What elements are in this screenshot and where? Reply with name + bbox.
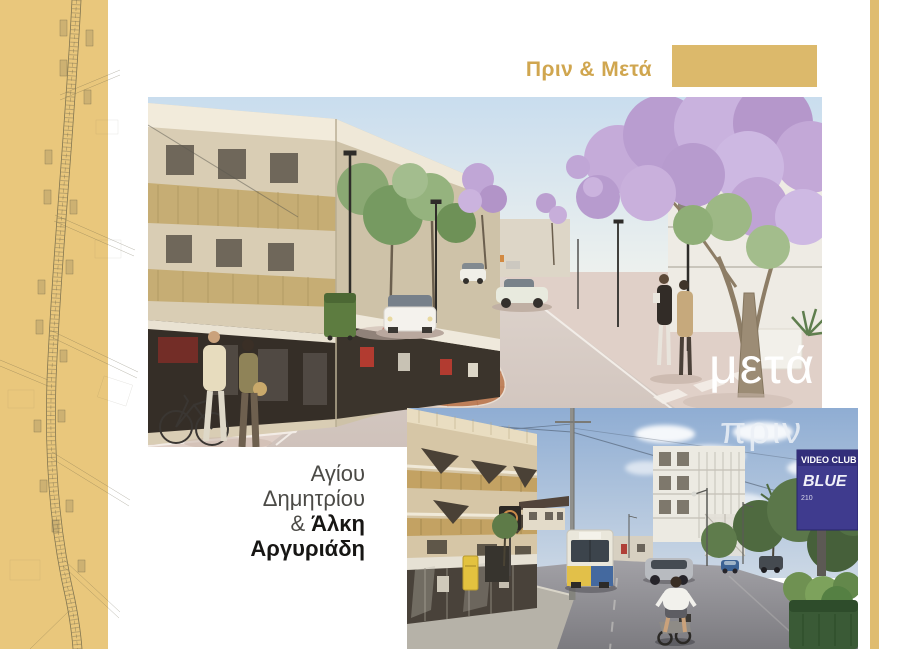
- minivan: [643, 558, 695, 585]
- location-line-1: Αγίου: [170, 461, 365, 486]
- location-line-2: Δημητρίου: [170, 486, 365, 511]
- page-title: Πριν & Μετά: [440, 58, 652, 82]
- car-white-small: [460, 263, 486, 284]
- right-gold-strip: [870, 0, 879, 649]
- street-plan-map-illustration: [0, 0, 140, 649]
- sign-line-1: VIDEO CLUB: [801, 455, 857, 465]
- bushes-and-dumpster: [783, 572, 858, 649]
- before-label: πριν: [720, 412, 803, 450]
- after-street-illustration: [148, 97, 822, 447]
- sign-line-2: BLUE: [803, 473, 848, 490]
- brown-roof-house: [519, 496, 569, 530]
- presentation-slide: { "header": { "title": "Πριν & Μετά" }, …: [0, 0, 918, 649]
- header-gold-block: [672, 45, 817, 87]
- trash-bin: [324, 293, 356, 341]
- bus: [565, 530, 617, 593]
- location-line-3: &Άλκη: [170, 511, 365, 536]
- location-line-4: Αργυριάδη: [170, 536, 365, 561]
- after-label: μετά: [709, 341, 816, 391]
- sign-line-3: 210: [801, 495, 813, 502]
- after-render-image: μετά: [148, 97, 822, 447]
- before-photo-image: VIDEO CLUB BLUE 210 πριν: [407, 408, 858, 649]
- location-caption: Αγίου Δημητρίου &Άλκη Αργυριάδη: [170, 461, 365, 561]
